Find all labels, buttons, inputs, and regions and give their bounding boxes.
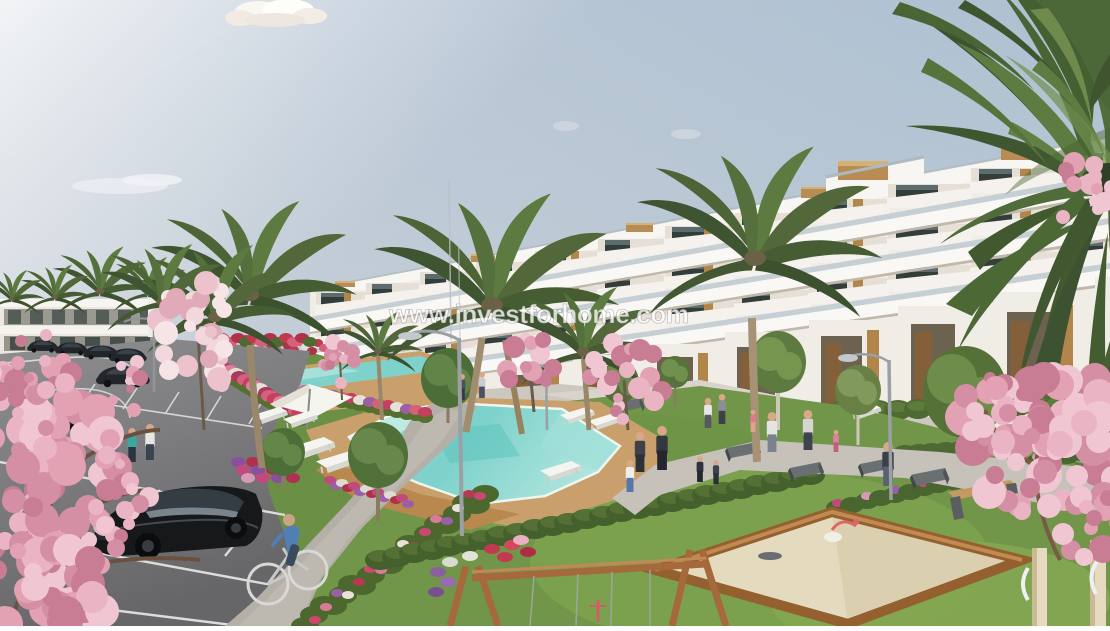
svg-text:www.investforhome.com: www.investforhome.com	[388, 299, 689, 329]
